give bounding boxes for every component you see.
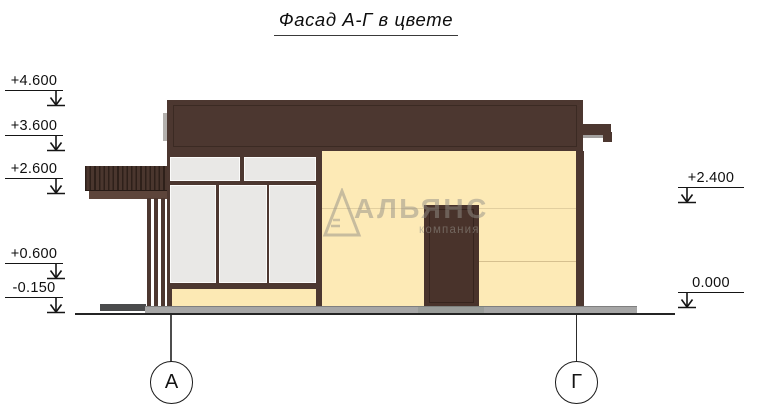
awning-post — [154, 198, 158, 307]
elevation-arrow-icon — [44, 298, 68, 315]
elevation-value: +4.600 — [5, 74, 63, 89]
ground-line — [75, 313, 675, 315]
transom-window-pane — [170, 157, 241, 181]
elevation-mark-plus-3600: +3.600 — [5, 119, 63, 136]
elevation-arrow-icon — [675, 293, 699, 310]
parapet-trim-line — [173, 105, 577, 147]
elevation-mark-plus-4600: +4.600 — [5, 74, 63, 91]
axis-leader-line-g — [576, 315, 577, 362]
elevation-value: +2.400 — [678, 171, 744, 186]
transom-window-pane — [244, 157, 317, 181]
watermark-subtitle-text: компания — [419, 224, 480, 236]
drain-pipe-shadow — [583, 135, 603, 138]
elevation-value: +0.600 — [5, 247, 63, 262]
axis-label-g: Г — [571, 371, 582, 394]
roof-parapet — [167, 100, 583, 152]
door-threshold — [418, 306, 484, 313]
axis-bubble-g: Г — [555, 361, 598, 404]
axis-bubble-a: А — [150, 361, 193, 404]
pavement-step-dark — [100, 304, 146, 311]
facade-elevation-drawing: Фасад А-Г в цвете +4.600 +3.600 +2.600 +… — [0, 0, 759, 418]
axis-leader-line-a — [170, 315, 171, 362]
elevation-value: +2.600 — [5, 162, 63, 177]
window-pane — [170, 185, 216, 283]
drawing-title-text: Фасад А-Г в цвете — [274, 9, 458, 36]
base-panel-cream — [172, 289, 316, 307]
elevation-arrow-icon — [44, 264, 68, 281]
watermark-brand-text: АЛЬЯНС — [354, 193, 489, 225]
elevation-value: +3.600 — [5, 119, 63, 134]
axis-label-a: А — [165, 371, 178, 394]
elevation-arrow-icon — [675, 188, 699, 205]
awning-canopy — [85, 166, 168, 191]
awning-post — [161, 198, 165, 307]
elevation-value: -0.150 — [5, 281, 63, 296]
window-pane — [269, 185, 316, 283]
elevation-mark-plus-0600: +0.600 — [5, 247, 63, 264]
awning-post — [147, 198, 151, 307]
pavement-strip — [145, 306, 637, 313]
elevation-arrow-icon — [44, 179, 68, 196]
elevation-mark-minus-0150: -0.150 — [5, 281, 63, 298]
window-pane — [219, 185, 267, 283]
elevation-arrow-icon — [44, 136, 68, 153]
elevation-mark-0000: 0.000 — [678, 276, 744, 293]
drawing-title: Фасад А-Г в цвете — [0, 9, 732, 36]
corner-trim-right — [576, 151, 584, 307]
elevation-value: 0.000 — [678, 276, 744, 291]
elevation-mark-plus-2600: +2.600 — [5, 162, 63, 179]
elevation-arrow-icon — [44, 91, 68, 108]
drain-pipe-outlet — [603, 132, 612, 142]
elevation-mark-plus-2400: +2.400 — [678, 171, 744, 188]
wall-joint-line — [479, 261, 577, 262]
